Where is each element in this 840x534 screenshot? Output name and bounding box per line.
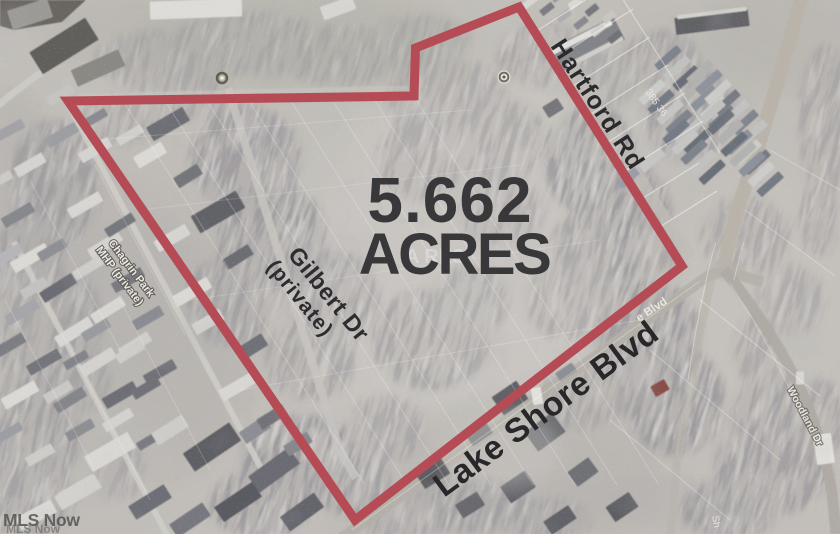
svg-text:MLS Now: MLS Now [6,522,61,534]
svg-text:Sh: Sh [709,515,722,529]
svg-text:ACRES: ACRES [359,222,550,287]
